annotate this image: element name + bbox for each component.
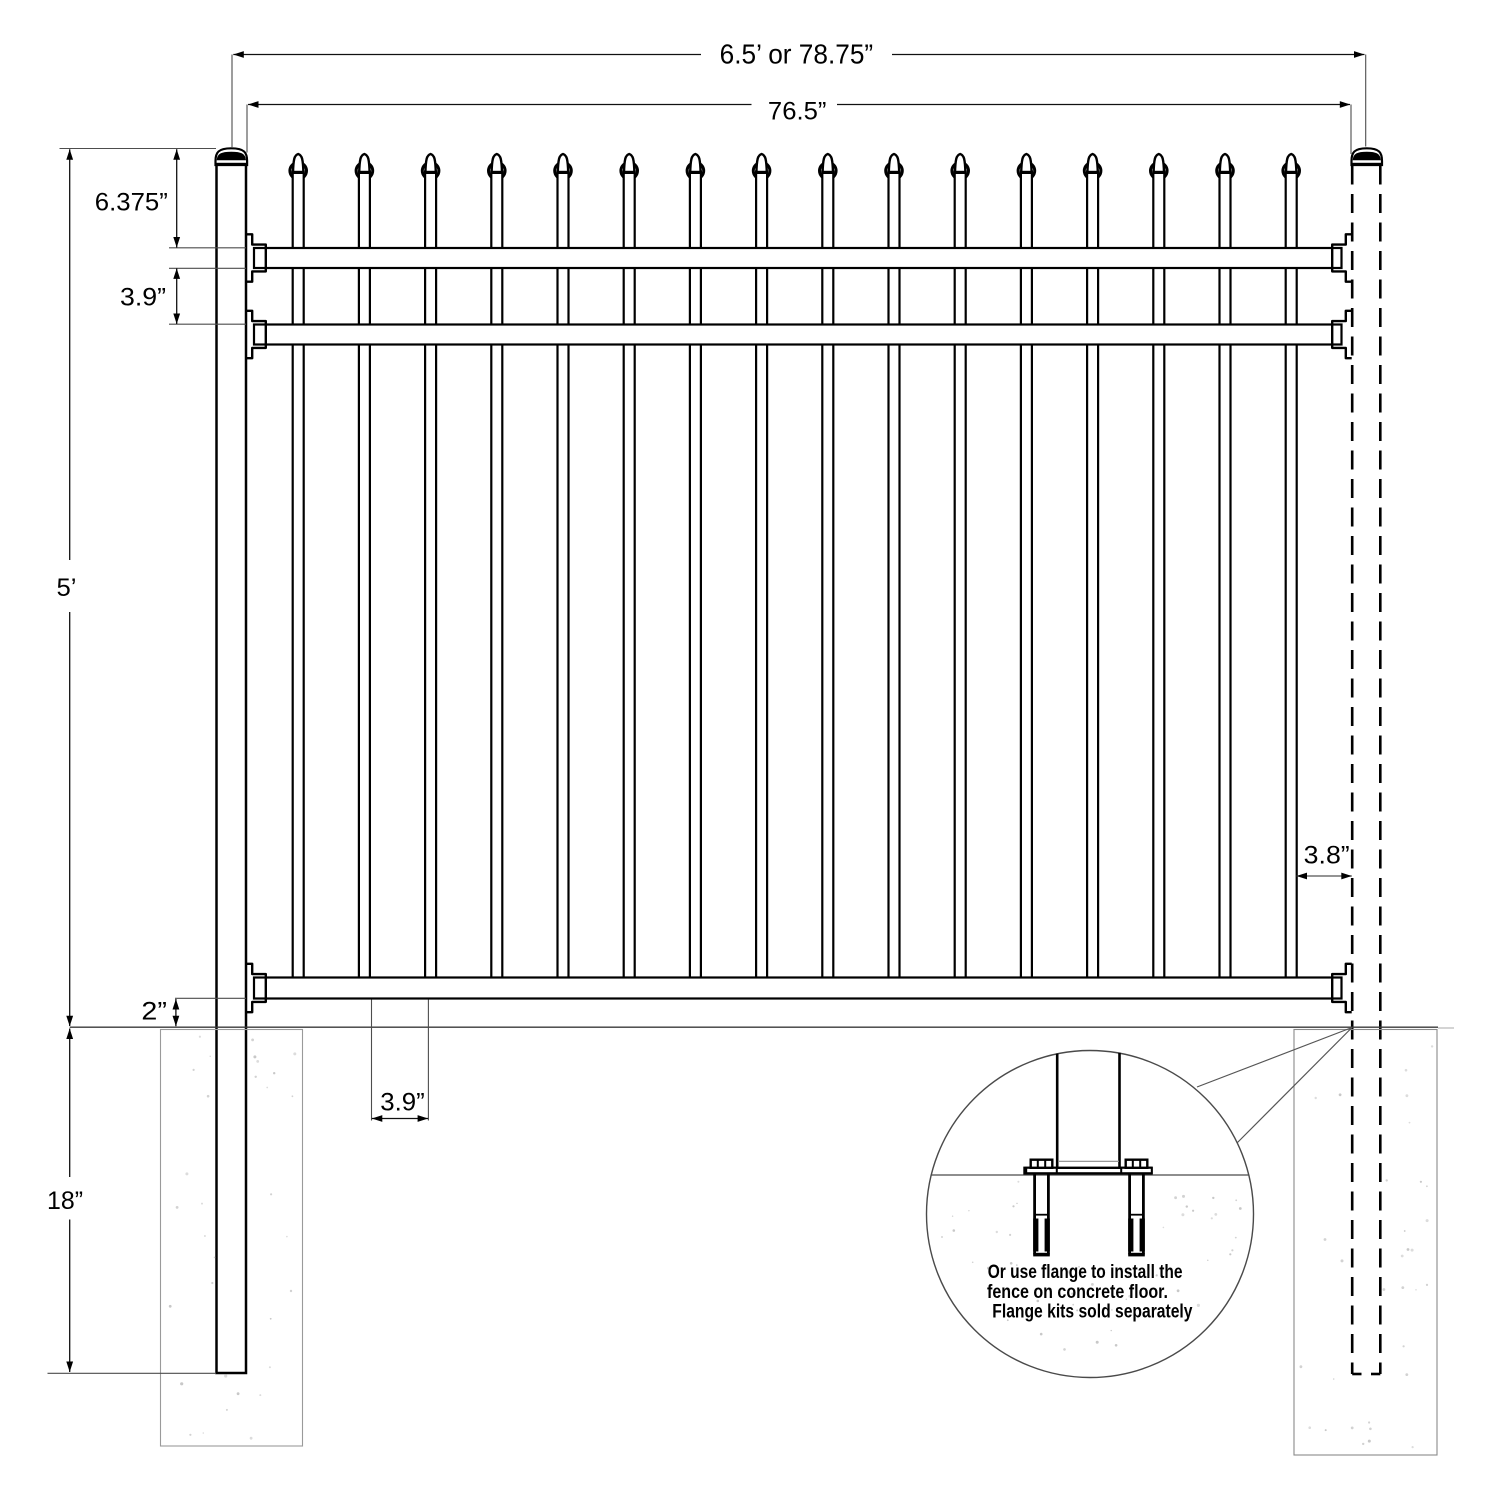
svg-text:2”: 2” — [141, 998, 167, 1026]
svg-text:Flange kits sold separately: Flange kits sold separately — [992, 1301, 1192, 1323]
svg-text:3.8”: 3.8” — [1304, 842, 1350, 870]
svg-text:5’: 5’ — [57, 574, 77, 602]
svg-text:6.5’ or 78.75”: 6.5’ or 78.75” — [720, 39, 874, 70]
svg-text:3.9”: 3.9” — [380, 1089, 425, 1117]
svg-text:3.9”: 3.9” — [120, 284, 166, 312]
svg-text:76.5”: 76.5” — [768, 97, 827, 125]
svg-text:Or use flange to install the: Or use flange to install the — [988, 1261, 1183, 1283]
svg-text:6.375”: 6.375” — [95, 188, 168, 216]
svg-text:18”: 18” — [47, 1187, 83, 1215]
svg-text:fence on concrete floor.: fence on concrete floor. — [987, 1281, 1168, 1303]
